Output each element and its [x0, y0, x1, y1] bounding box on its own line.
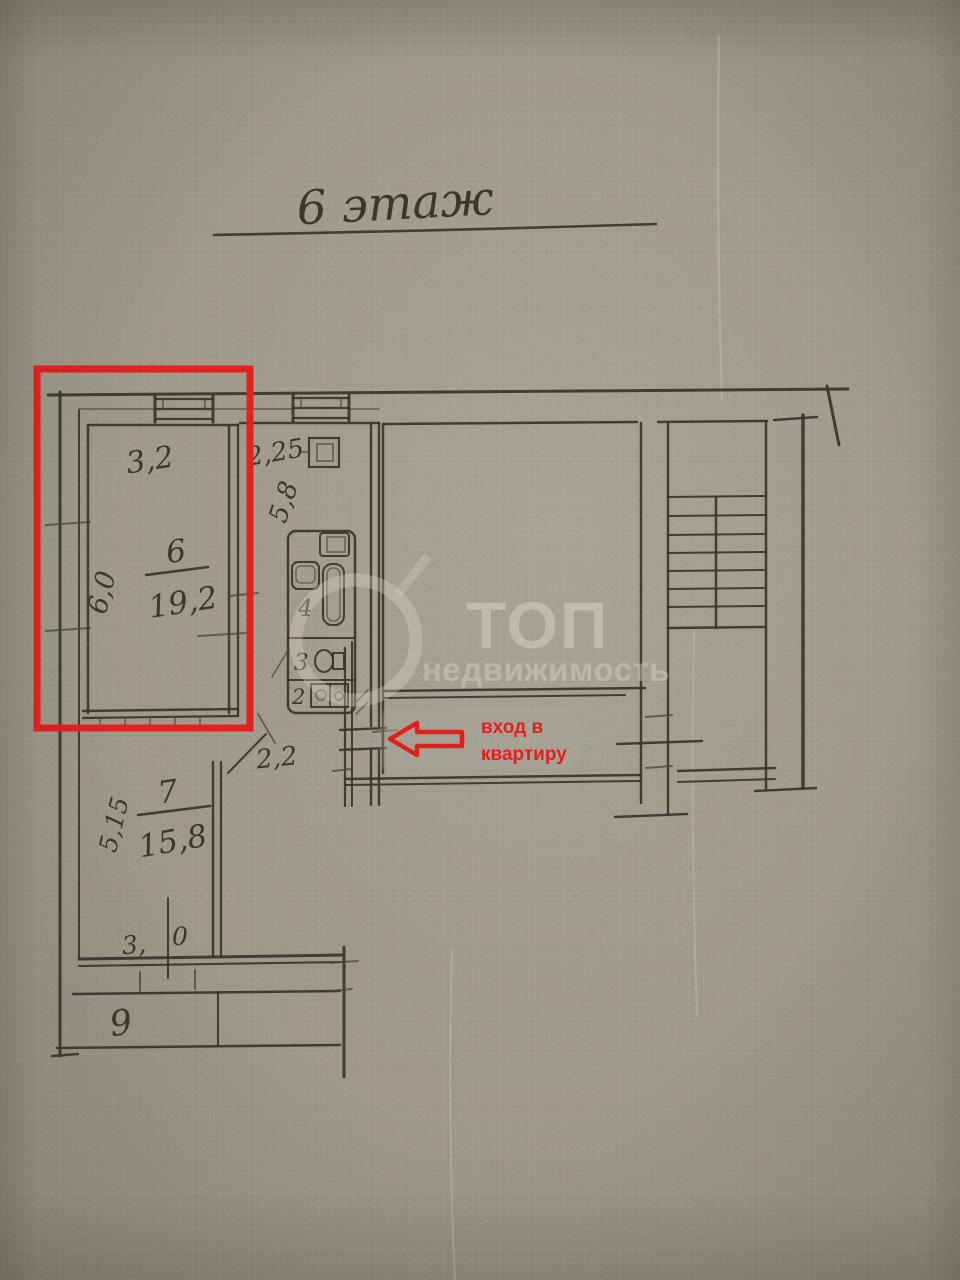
balcony-number-label: 9: [107, 1002, 135, 1045]
entrance-label-line1: вход в: [481, 717, 543, 738]
wall-tick: [617, 741, 702, 744]
title-group: 6 этаж: [295, 171, 495, 236]
floor-plan-drawing: 6 этаж 3,2 6,0 6 19: [0, 0, 960, 1280]
page-title: 6 этаж: [295, 171, 495, 236]
crease-line: [450, 950, 455, 1280]
watermark-brand-sub: недвижимость: [422, 651, 670, 688]
room7-number-label: 7: [156, 773, 181, 811]
toilet-icon: [315, 650, 344, 672]
room6-number-label: 6: [164, 533, 188, 571]
door-swing: [272, 650, 288, 677]
staircase-icon: [658, 415, 817, 791]
window-icon: [293, 395, 349, 421]
wall-end-tick: [827, 386, 839, 445]
red-annotations: вход в квартиру: [37, 369, 578, 769]
wall-left-foot: [52, 1054, 78, 1056]
corridor-wall: [345, 775, 640, 779]
wall-hatch-tick: [46, 522, 90, 525]
vent-shaft-icon: [301, 438, 339, 467]
balcony-door-dim-left: 3,: [121, 929, 148, 960]
window-icon: [155, 396, 213, 422]
sink-icon: [320, 533, 349, 556]
watermark-logo-swoosh: [398, 556, 428, 594]
wall-top: [48, 389, 848, 395]
room7-labels: 7 15,8 5,15 2,2 3, 0: [93, 741, 299, 960]
entry-door-tick: [340, 728, 386, 730]
entrance-label-line2: квартиру: [481, 744, 567, 765]
room7-depth-label: 5,15: [93, 794, 135, 855]
wall-tick: [755, 788, 816, 791]
wall-hatch-tick: [46, 628, 90, 631]
room6-area-label: 19,2: [146, 580, 220, 626]
corridor-wall: [345, 781, 640, 785]
hall-room7-walls: [79, 734, 344, 991]
balcony-door-dim-right: 0: [172, 922, 188, 951]
crease-line: [718, 35, 722, 400]
wall-tick: [615, 814, 687, 817]
hall-width-label: 2,2: [254, 741, 299, 775]
room7-area-label: 15,8: [136, 818, 210, 865]
room6-width-label: 3,2: [124, 439, 177, 481]
room6-labels: 3,2 6,0 6 19,2: [82, 439, 220, 625]
scanned-floor-plan-photo: 6 этаж 3,2 6,0 6 19: [0, 0, 960, 1280]
kitchen-depth-label: 5,8: [264, 478, 305, 527]
dimension-tick: [229, 593, 258, 596]
crease-line: [693, 630, 697, 1015]
bathroom-block: 4 3 2: [258, 531, 355, 743]
washbasin-icon: [292, 562, 319, 589]
wall-tick: [774, 417, 817, 420]
storage-number-label: 2: [291, 685, 305, 709]
red-highlight-box: [37, 369, 250, 728]
